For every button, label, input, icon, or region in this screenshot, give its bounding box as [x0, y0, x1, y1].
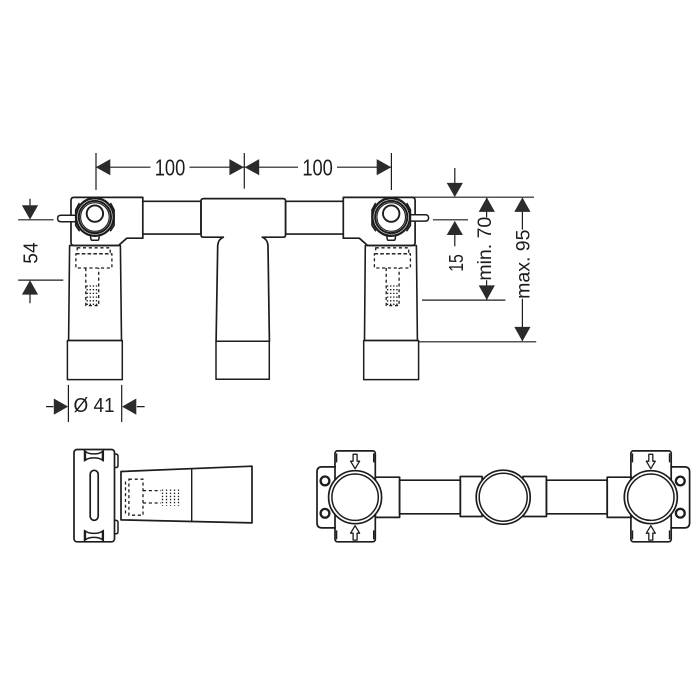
svg-text:54: 54 — [20, 242, 42, 264]
svg-text:100: 100 — [302, 154, 333, 180]
svg-text:100: 100 — [155, 154, 186, 180]
svg-text:15: 15 — [446, 254, 468, 272]
svg-text:min. 70: min. 70 — [474, 217, 496, 281]
svg-text:Ø 41: Ø 41 — [74, 395, 115, 417]
svg-text:max. 95: max. 95 — [512, 229, 534, 299]
